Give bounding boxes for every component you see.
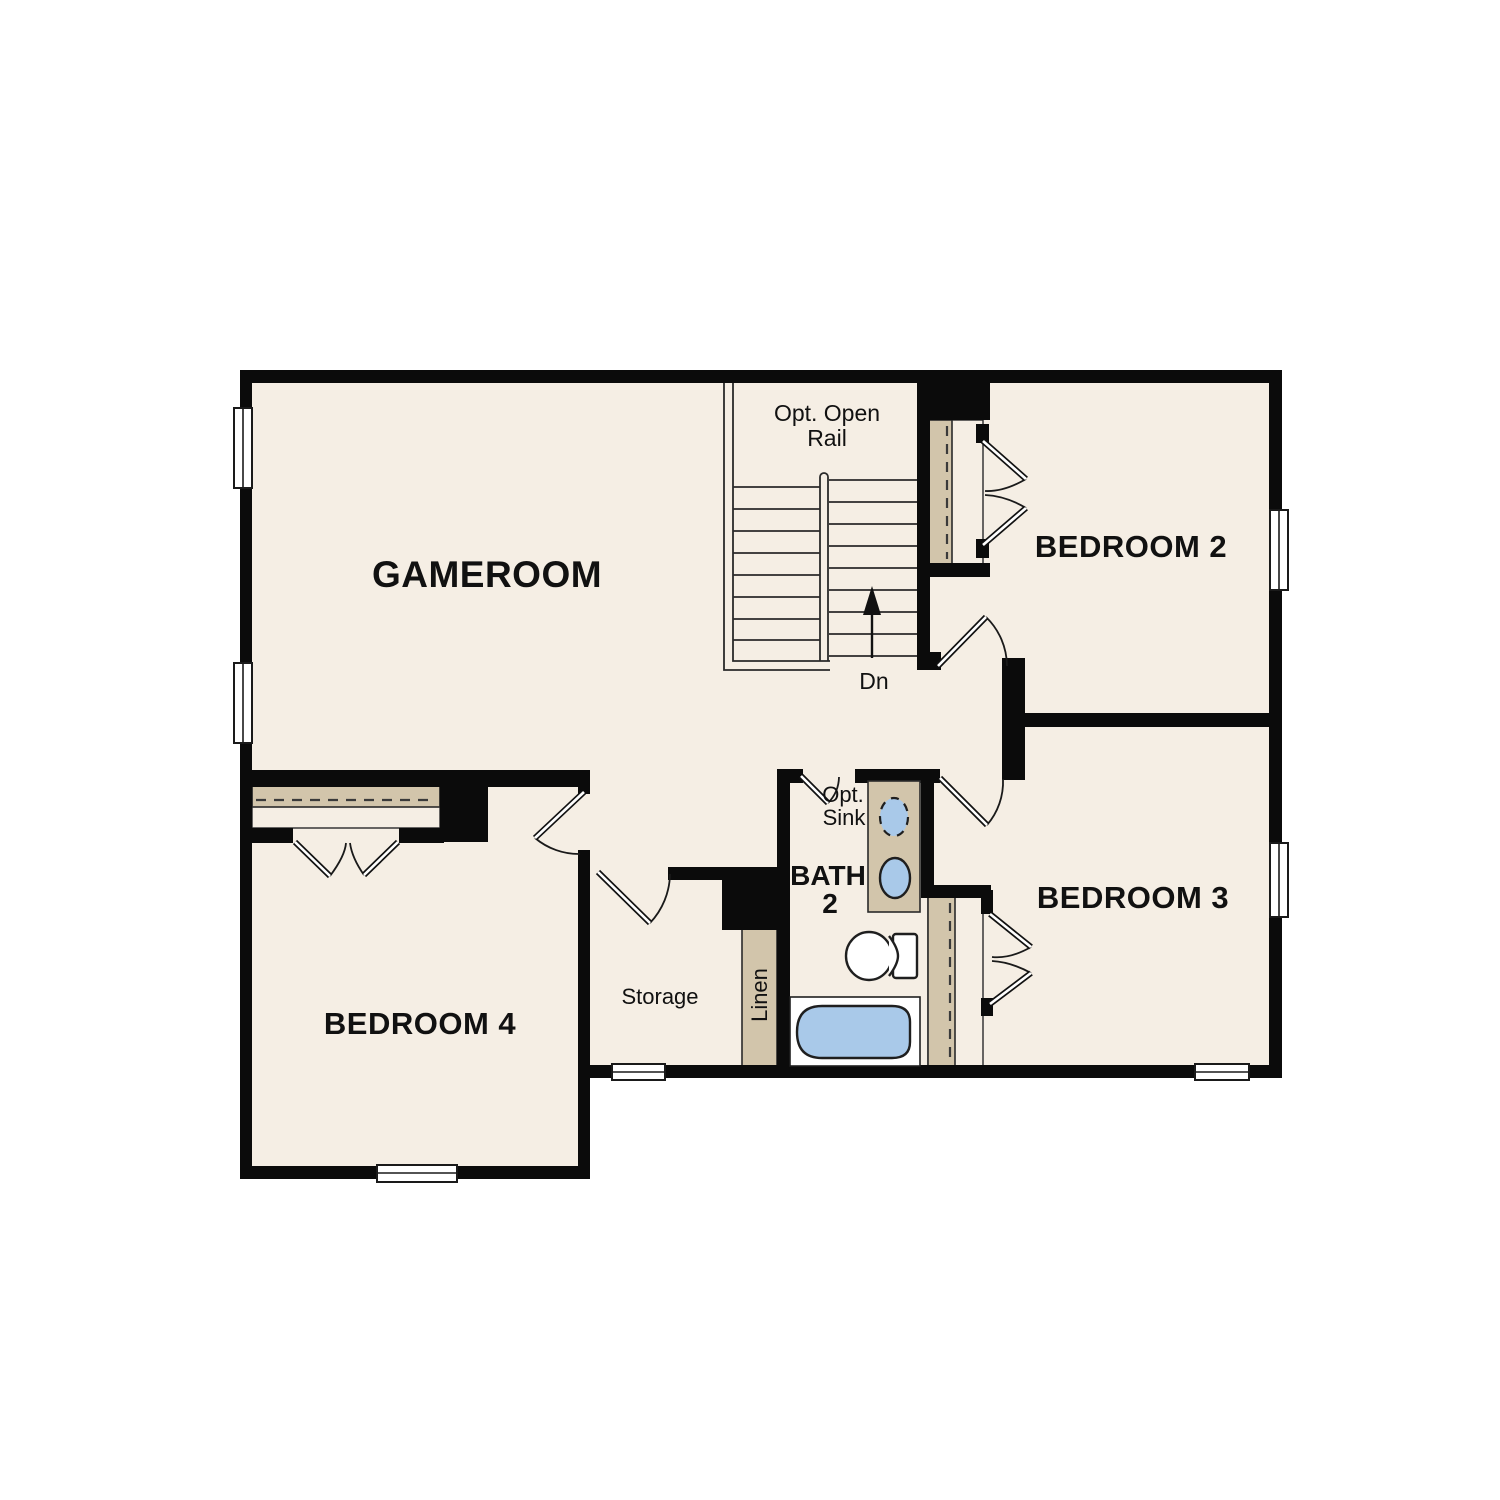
window-bedroom4 (377, 1165, 457, 1182)
bath2-label-line2: 2 (822, 888, 838, 919)
floor-plan-page: GAMEROOM BEDROOM 2 BEDROOM 3 BEDROOM 4 B… (0, 0, 1500, 1500)
floor-plan: GAMEROOM BEDROOM 2 BEDROOM 3 BEDROOM 4 B… (0, 0, 1500, 1500)
wall-bedroom3-west (921, 769, 934, 897)
wall-gameroom-south (240, 770, 590, 787)
wall-block-bedroom4 (440, 770, 488, 842)
gameroom-label: GAMEROOM (372, 554, 602, 595)
wall-stair-east-foot (917, 652, 941, 670)
wall-bath-west (777, 769, 790, 1066)
sink (880, 858, 910, 898)
window-storage (612, 1064, 665, 1080)
bedroom3-label: BEDROOM 3 (1037, 880, 1229, 915)
wall-bedroom2-bedroom3-divider (1002, 713, 1282, 727)
bath2-label-line1: BATH (790, 860, 866, 891)
stair-direction-label: Dn (859, 668, 888, 694)
stair-note-line2: Rail (807, 425, 847, 451)
optional-sink (880, 798, 908, 836)
bathtub (797, 1006, 910, 1058)
window-gameroom-lower (234, 663, 252, 743)
optional-sink-label-line2: Sink (823, 805, 867, 830)
window-bedroom3-bottom (1195, 1064, 1249, 1080)
wall-bedroom4-right (578, 850, 590, 1178)
wall-bedroom4-closet-jamb-right (399, 828, 444, 843)
wall-exterior-top (240, 370, 1282, 383)
wall-bedroom2-bifold-jamb-top (976, 424, 989, 443)
bedroom2-label: BEDROOM 2 (1035, 529, 1227, 564)
wall-bedroom4-closet-jamb-left (246, 828, 293, 843)
wall-bedroom2-closet-block (917, 370, 990, 420)
stair-note-line1: Opt. Open (774, 400, 880, 426)
wall-bedroom3-closet-top (921, 885, 991, 898)
wall-exterior-bottom-east (578, 1065, 1282, 1078)
wall-bedroom3-bifold-jamb-top (981, 890, 993, 914)
toilet (846, 932, 917, 980)
storage-label: Storage (621, 984, 698, 1009)
wall-storage-top (668, 867, 726, 880)
wall-bedroom2-closet-bottom (919, 563, 990, 577)
window-bedroom2 (1270, 510, 1288, 590)
optional-sink-label-line1: Opt. (822, 782, 864, 807)
wall-bath-north-stub (777, 769, 803, 783)
window-gameroom-upper (234, 408, 252, 488)
window-bedroom3-right (1270, 843, 1288, 917)
bedroom4-label: BEDROOM 4 (324, 1006, 517, 1041)
linen-label: Linen (747, 968, 772, 1022)
